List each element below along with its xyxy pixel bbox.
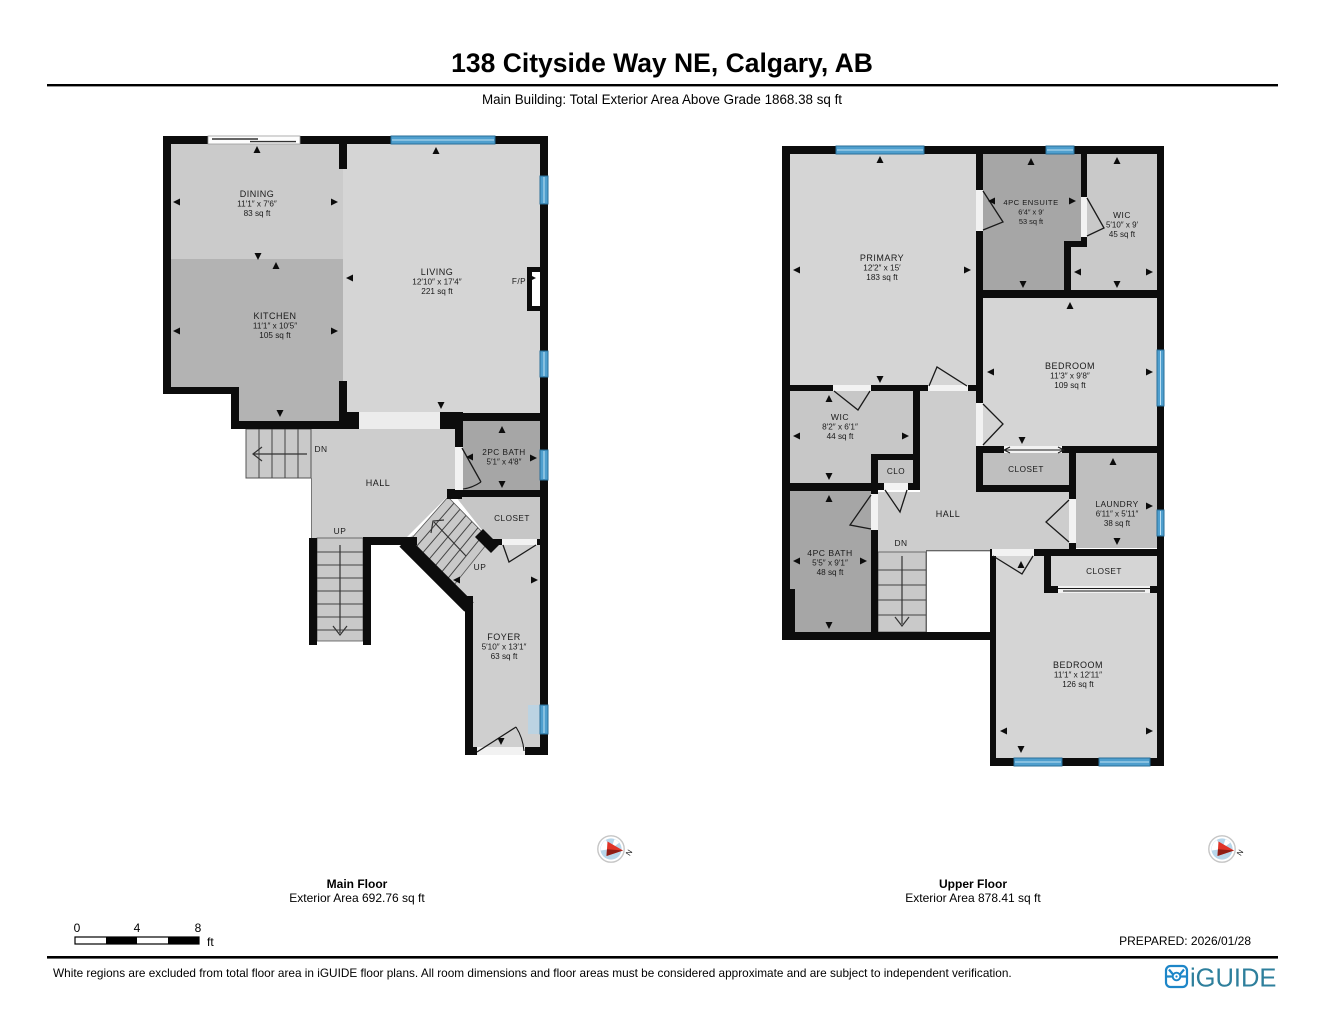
svg-text:48 sq ft: 48 sq ft [817,568,845,577]
svg-text:4PC BATH: 4PC BATH [807,548,852,558]
svg-text:5′10″ x 9′: 5′10″ x 9′ [1106,221,1139,230]
svg-text:BEDROOM: BEDROOM [1045,361,1095,371]
svg-text:45 sq ft: 45 sq ft [1109,230,1136,239]
svg-text:4: 4 [134,921,141,935]
svg-text:8′2″ x 6′1″: 8′2″ x 6′1″ [822,423,858,432]
svg-text:5′10″ x 13′1″: 5′10″ x 13′1″ [482,643,527,652]
svg-text:DN: DN [894,538,907,548]
svg-text:6′4″ x 9′: 6′4″ x 9′ [1018,208,1044,217]
svg-text:Main Floor: Main Floor [327,877,388,891]
svg-text:11′1″ x 7′6″: 11′1″ x 7′6″ [237,200,277,209]
svg-text:12′2″ x 15′: 12′2″ x 15′ [863,264,901,273]
svg-text:6′11″ x 5′11″: 6′11″ x 5′11″ [1096,510,1139,519]
svg-text:105 sq ft: 105 sq ft [259,331,291,340]
svg-text:CLOSET: CLOSET [1086,567,1122,576]
svg-text:PREPARED: 2026/01/28: PREPARED: 2026/01/28 [1119,934,1251,948]
svg-text:CLO: CLO [887,467,905,476]
svg-text:Exterior Area 692.76 sq ft: Exterior Area 692.76 sq ft [289,891,425,905]
svg-text:221 sq ft: 221 sq ft [421,287,453,296]
svg-text:183 sq ft: 183 sq ft [866,273,898,282]
svg-text:CLOSET: CLOSET [1008,465,1044,474]
svg-text:DINING: DINING [240,189,275,199]
svg-text:KITCHEN: KITCHEN [253,311,296,321]
svg-text:63 sq ft: 63 sq ft [491,652,519,661]
svg-text:FOYER: FOYER [487,632,521,642]
svg-text:PRIMARY: PRIMARY [860,253,904,263]
svg-text:UP: UP [474,562,487,572]
svg-text:WIC: WIC [831,412,849,422]
svg-text:8: 8 [195,921,202,935]
svg-text:Exterior Area 878.41 sq ft: Exterior Area 878.41 sq ft [905,891,1041,905]
svg-text:LIVING: LIVING [421,267,454,277]
svg-text:11′3″ x 9′8″: 11′3″ x 9′8″ [1050,372,1090,381]
svg-text:LAUNDRY: LAUNDRY [1095,499,1138,509]
svg-text:iGUIDE: iGUIDE [1190,965,1276,993]
svg-text:138 Cityside Way NE, Calgary,: 138 Cityside Way NE, Calgary, AB [451,48,873,78]
svg-text:5′1″ x 4′8″: 5′1″ x 4′8″ [487,458,522,467]
svg-text:Main Building: Total Exterior: Main Building: Total Exterior Area Above… [482,92,842,107]
svg-text:38 sq ft: 38 sq ft [1104,519,1131,528]
svg-text:44 sq ft: 44 sq ft [827,432,855,441]
svg-text:11′1″ x 10′5″: 11′1″ x 10′5″ [253,322,297,331]
svg-text:2PC BATH: 2PC BATH [482,448,525,457]
svg-text:HALL: HALL [936,509,961,519]
svg-text:126 sq ft: 126 sq ft [1062,680,1094,689]
svg-text:HALL: HALL [366,478,391,488]
svg-text:4PC ENSUITE: 4PC ENSUITE [1003,198,1058,207]
svg-text:109 sq ft: 109 sq ft [1054,381,1086,390]
svg-text:0: 0 [74,921,81,935]
svg-text:53 sq ft: 53 sq ft [1019,217,1043,226]
svg-text:ft: ft [207,935,214,949]
svg-text:F/P: F/P [512,277,526,286]
svg-text:DN: DN [314,444,327,454]
svg-text:12′10″ x 17′4″: 12′10″ x 17′4″ [412,278,461,287]
svg-text:WIC: WIC [1113,210,1131,220]
svg-text:Upper Floor: Upper Floor [939,877,1007,891]
svg-text:BEDROOM: BEDROOM [1053,660,1103,670]
svg-text:White regions are excluded fro: White regions are excluded from total fl… [53,966,1012,980]
svg-text:83 sq ft: 83 sq ft [244,209,272,218]
svg-text:UP: UP [334,526,347,536]
svg-text:5′5″ x 9′1″: 5′5″ x 9′1″ [812,559,848,568]
svg-text:CLOSET: CLOSET [494,514,530,523]
svg-text:11′1″ x 12′11″: 11′1″ x 12′11″ [1054,671,1102,680]
